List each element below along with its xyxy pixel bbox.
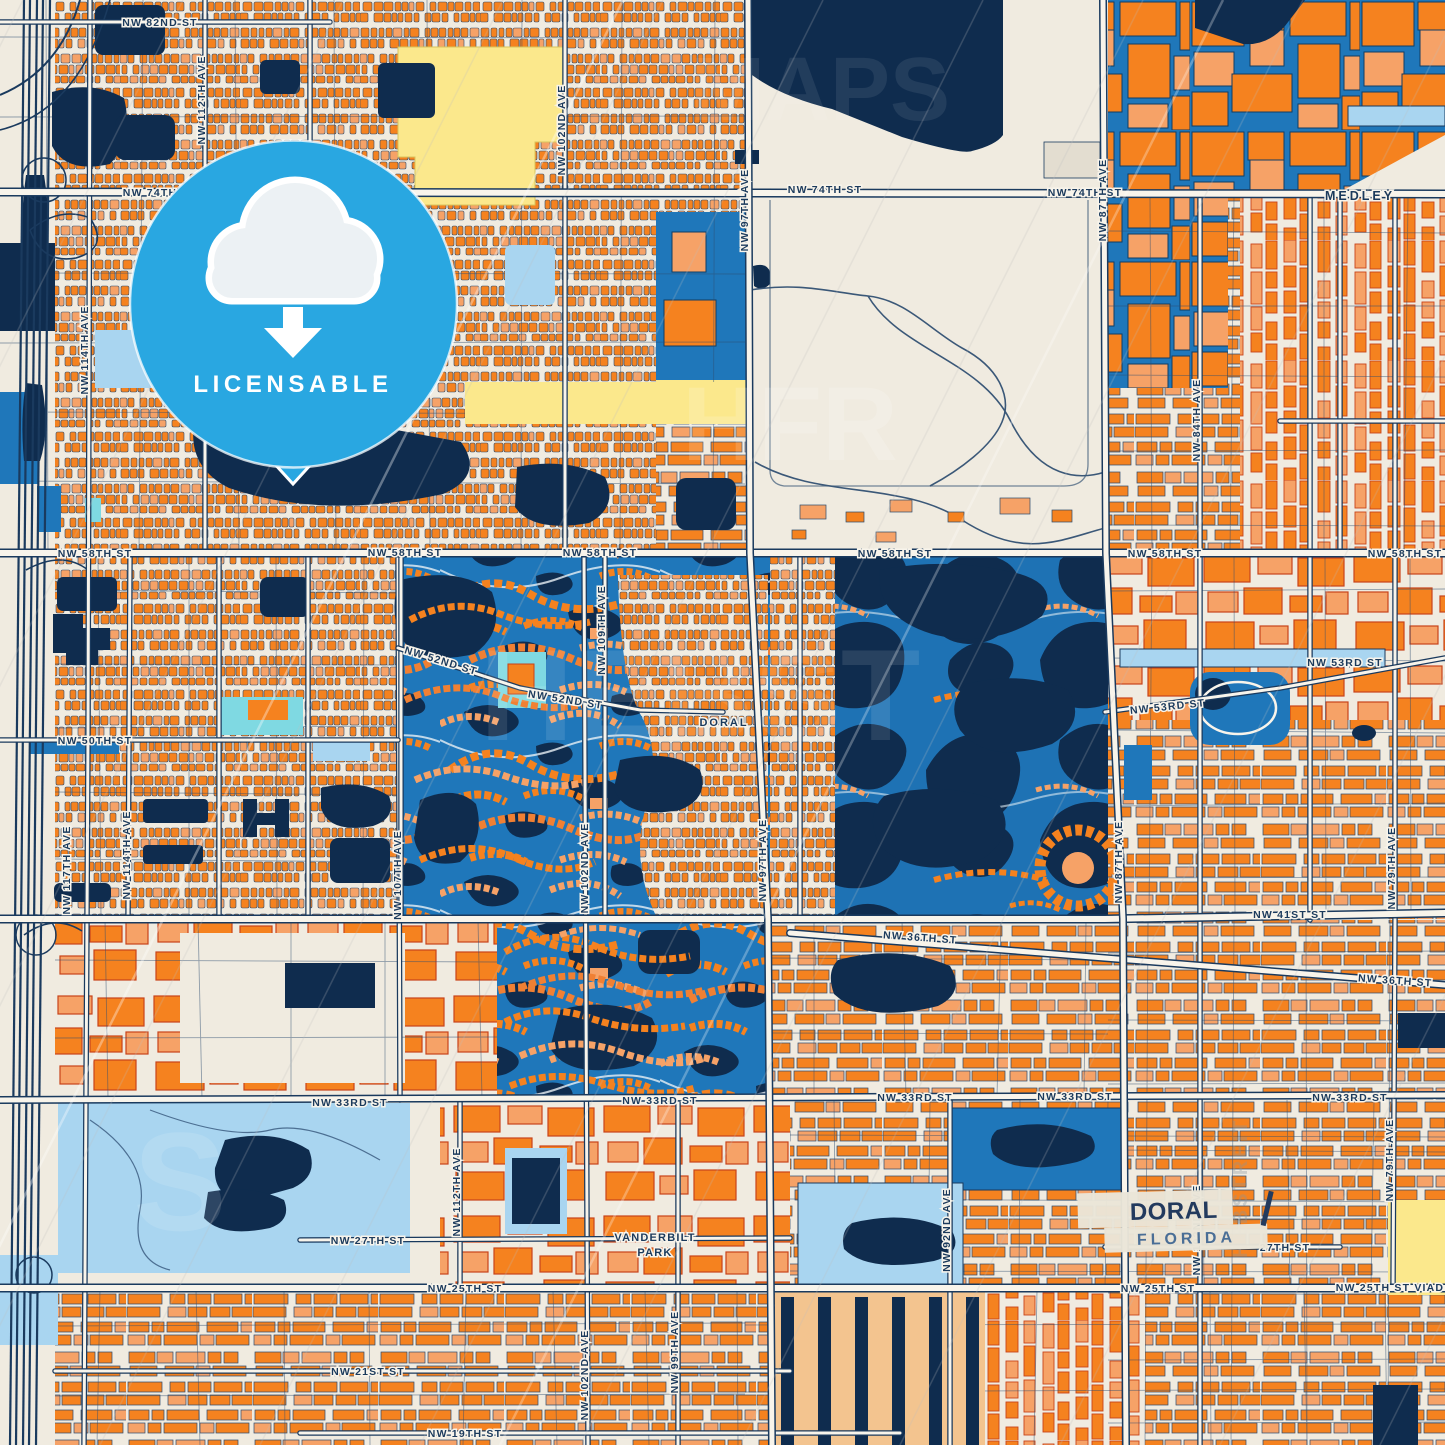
svg-text:VANDERBILT: VANDERBILT bbox=[614, 1232, 695, 1244]
svg-text:NW 33RD ST: NW 33RD ST bbox=[1037, 1091, 1113, 1103]
svg-text:NW 97TH AVE: NW 97TH AVE bbox=[739, 169, 751, 252]
svg-text:NW 58TH ST: NW 58TH ST bbox=[858, 548, 932, 560]
svg-text:NW 50TH ST: NW 50TH ST bbox=[58, 735, 132, 747]
svg-text:NW 102ND AVE: NW 102ND AVE bbox=[579, 823, 591, 914]
svg-text:NW 82ND ST: NW 82ND ST bbox=[122, 17, 198, 29]
svg-text:NW 109TH AVE: NW 109TH AVE bbox=[596, 585, 608, 675]
svg-text:NW 87TH AVE: NW 87TH AVE bbox=[1113, 821, 1125, 904]
svg-text:NW 33RD ST: NW 33RD ST bbox=[622, 1095, 698, 1107]
svg-text:NW 92ND AVE: NW 92ND AVE bbox=[941, 1188, 953, 1272]
svg-text:HFR: HFR bbox=[682, 366, 898, 483]
svg-text:NW 25TH ST: NW 25TH ST bbox=[428, 1283, 502, 1295]
svg-text:NW 79TH AVE: NW 79TH AVE bbox=[1386, 827, 1398, 910]
svg-text:NW 58TH ST: NW 58TH ST bbox=[368, 547, 442, 559]
svg-text:NW 33RD ST: NW 33RD ST bbox=[1312, 1092, 1388, 1104]
svg-text:NW 19TH ST: NW 19TH ST bbox=[428, 1428, 502, 1440]
svg-text:NW 27TH ST: NW 27TH ST bbox=[331, 1235, 405, 1247]
svg-text:LICENSABLE: LICENSABLE bbox=[193, 371, 392, 398]
svg-text:DORAL: DORAL bbox=[1130, 1197, 1219, 1226]
svg-text:NW 58TH ST: NW 58TH ST bbox=[563, 547, 637, 559]
svg-text:NW 99TH AVE: NW 99TH AVE bbox=[669, 1311, 681, 1394]
svg-text:NW 21ST ST: NW 21ST ST bbox=[331, 1366, 405, 1378]
svg-text:PARK: PARK bbox=[637, 1247, 672, 1259]
svg-text:NW 33RD ST: NW 33RD ST bbox=[312, 1097, 388, 1109]
svg-text:FLORIDA: FLORIDA bbox=[1137, 1229, 1237, 1249]
svg-text:NW 53RD ST: NW 53RD ST bbox=[1307, 657, 1383, 669]
svg-text:NW 117TH AVE: NW 117TH AVE bbox=[61, 825, 73, 914]
svg-text:NW 102ND AVE: NW 102ND AVE bbox=[556, 85, 568, 176]
svg-text:NW 33RD ST: NW 33RD ST bbox=[877, 1092, 953, 1104]
svg-text:MEDLEY: MEDLEY bbox=[1325, 189, 1395, 203]
svg-text:NW 84TH AVE: NW 84TH AVE bbox=[1191, 379, 1203, 462]
svg-text:NW 112TH AVE: NW 112TH AVE bbox=[196, 55, 208, 144]
svg-text:NW 79TH AVE: NW 79TH AVE bbox=[1384, 1119, 1396, 1202]
svg-text:DORAL: DORAL bbox=[699, 717, 748, 729]
svg-text:NW 58TH ST: NW 58TH ST bbox=[1128, 548, 1202, 560]
svg-text:NW 74TH ST: NW 74TH ST bbox=[788, 184, 862, 196]
svg-text:S: S bbox=[133, 1103, 226, 1260]
svg-text:NW 102ND AVE: NW 102ND AVE bbox=[579, 1330, 591, 1421]
svg-text:NW 97TH AVE: NW 97TH AVE bbox=[757, 819, 769, 902]
svg-text:NW 58TH ST: NW 58TH ST bbox=[58, 548, 132, 560]
svg-text:NW 74TH ST: NW 74TH ST bbox=[1048, 187, 1122, 199]
svg-text:NW 112TH AVE: NW 112TH AVE bbox=[451, 1147, 463, 1236]
svg-text:NW 25TH ST: NW 25TH ST bbox=[1121, 1283, 1195, 1295]
svg-text:NW 25TH ST VIAD: NW 25TH ST VIAD bbox=[1336, 1282, 1444, 1294]
svg-text:NW 58TH ST: NW 58TH ST bbox=[1368, 548, 1442, 560]
svg-text:NW 41ST ST: NW 41ST ST bbox=[1253, 909, 1327, 921]
svg-text:NW 107TH AVE: NW 107TH AVE bbox=[392, 830, 404, 920]
svg-text:NW 87TH AVE: NW 87TH AVE bbox=[1097, 159, 1109, 242]
svg-text:NW 114TH AVE: NW 114TH AVE bbox=[79, 305, 91, 394]
svg-text:NW 114TH AVE: NW 114TH AVE bbox=[121, 810, 133, 899]
svg-text:MAPS: MAPS bbox=[690, 40, 950, 140]
